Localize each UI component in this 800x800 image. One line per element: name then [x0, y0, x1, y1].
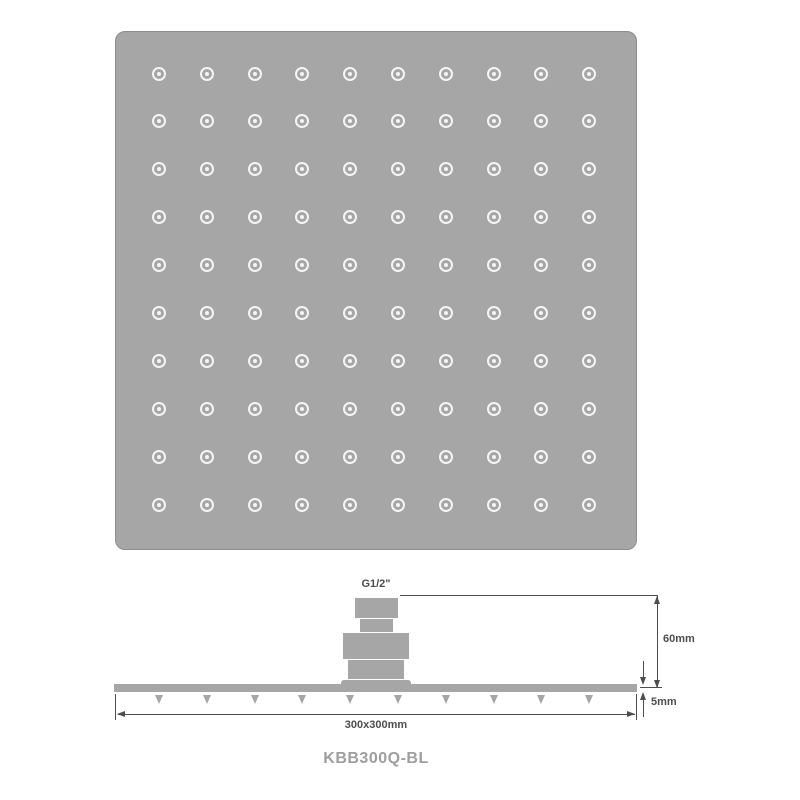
shower-plate	[114, 684, 637, 692]
spray-nozzle-triangle	[203, 695, 211, 704]
thickness-lower-pointer-line	[643, 700, 644, 717]
spray-nozzle-triangle	[537, 695, 545, 704]
connector-base-block	[348, 660, 404, 679]
spray-nozzle-triangle	[251, 695, 259, 704]
connector-size-label: G1/2"	[347, 578, 405, 590]
height-extension-line	[400, 595, 658, 596]
connector-flange	[341, 680, 411, 685]
height-dimension-line	[657, 596, 658, 688]
arrow-down-icon	[640, 677, 646, 685]
connector-thread-block	[355, 598, 398, 618]
spray-nozzle-triangle	[442, 695, 450, 704]
spray-nozzle-triangle	[298, 695, 306, 704]
plate-top-extension-line	[640, 687, 662, 688]
width-extension-line-left	[115, 694, 116, 720]
width-extension-line-right	[636, 694, 637, 720]
thickness-upper-pointer-line	[643, 661, 644, 677]
spray-nozzle-triangle	[490, 695, 498, 704]
arrow-up-icon	[654, 596, 660, 604]
spray-nozzle-triangle	[155, 695, 163, 704]
spray-nozzle-triangle	[585, 695, 593, 704]
shower-head-spec-diagram: G1/2" 60mm 5mm 300x300mm KBB300Q-BL	[0, 0, 800, 800]
height-dimension-label: 60mm	[663, 633, 695, 645]
connector-body-block	[343, 633, 409, 659]
face-dimension-label: 300x300mm	[330, 719, 422, 731]
width-dimension-line	[118, 714, 635, 715]
thickness-dimension-label: 5mm	[651, 696, 677, 708]
spray-nozzle-triangle	[346, 695, 354, 704]
arrow-left-icon	[117, 711, 125, 717]
arrow-right-icon	[627, 711, 635, 717]
connector-neck	[360, 619, 393, 632]
shower-head-side-view: G1/2" 60mm 5mm 300x300mm	[0, 0, 800, 800]
spray-nozzle-triangle	[394, 695, 402, 704]
product-code: KBB300Q-BL	[295, 750, 457, 768]
arrow-up-icon	[640, 692, 646, 700]
